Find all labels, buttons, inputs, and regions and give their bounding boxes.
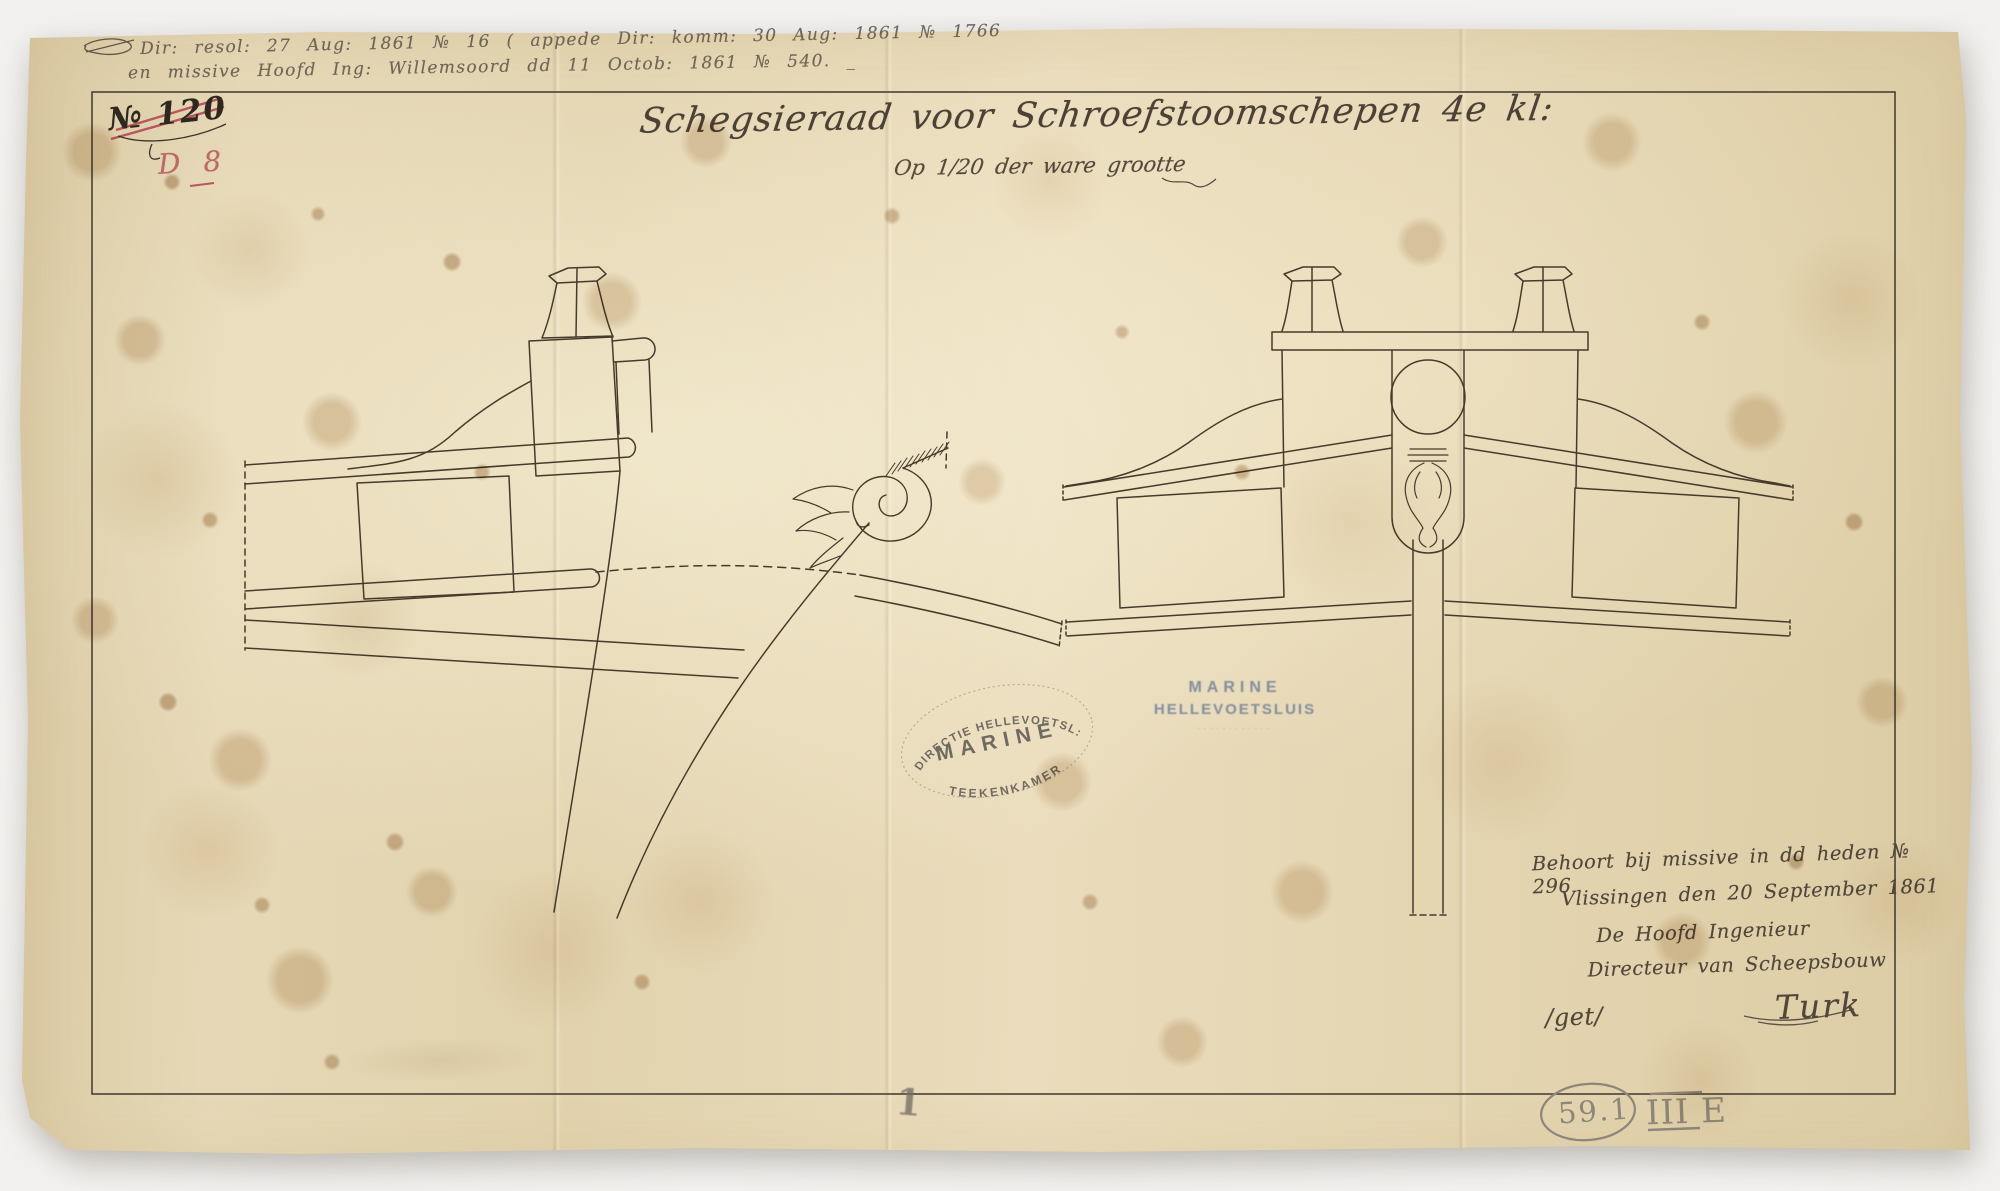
fold-crease: [1458, 28, 1467, 1154]
fold-crease: [552, 28, 561, 1154]
bottom-pencil-mark: 1: [894, 1081, 923, 1125]
signature-name: Turk: [1774, 985, 1862, 1027]
get-mark: /get/: [1545, 1002, 1604, 1032]
blue-stamp-line2: HELLEVOETSLUIS: [1135, 701, 1335, 718]
blue-stamp-line3: ············: [1135, 723, 1335, 734]
embossed-blind-stamp: [339, 1035, 540, 1086]
blue-stamp-line1: MARINE: [1135, 679, 1335, 697]
signature-line3: De Hoofd Ingenieur: [1596, 917, 1810, 947]
red-inventory-code: D 8: [157, 144, 229, 181]
archival-drawing-photo: DIRECTIE HELLEVOETSL: MARINE TEEKENKAMER…: [0, 0, 2000, 1191]
archive-code-series: III E: [1645, 1091, 1727, 1134]
archive-code-circled: 59.1: [1557, 1092, 1632, 1131]
fold-crease: [884, 28, 893, 1154]
signature-block: Behoort bij missive in dd heden № 296 Vl…: [1531, 838, 1958, 1063]
signature-line4: Directeur van Scheepsbouw: [1587, 948, 1887, 981]
